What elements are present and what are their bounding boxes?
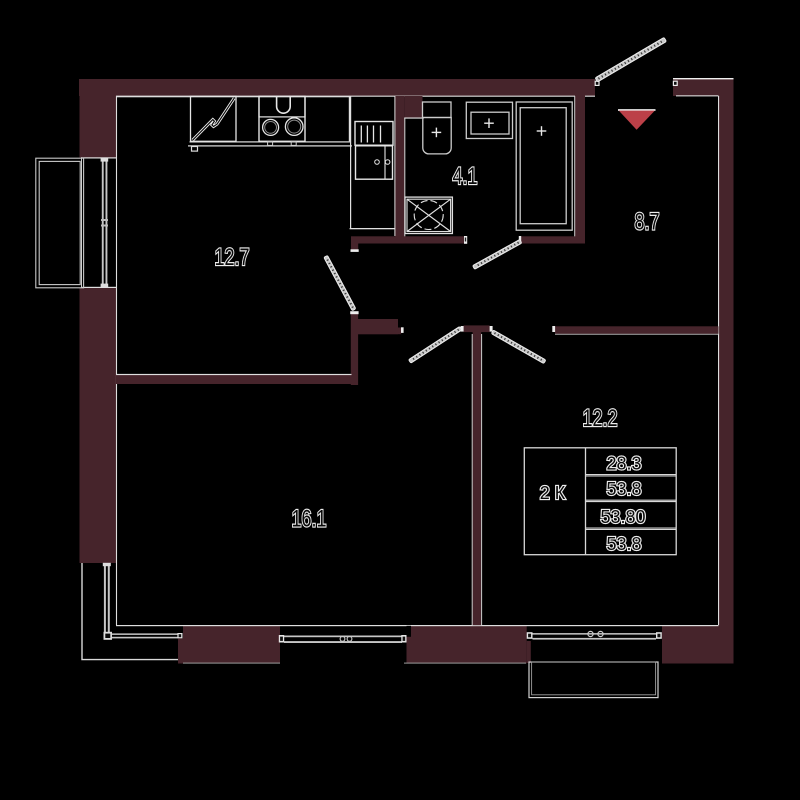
svg-text:12.7: 12.7 [214,245,249,271]
svg-text:4.1: 4.1 [452,164,477,190]
svg-text:12.2: 12.2 [582,406,617,432]
svg-text:53.8: 53.8 [606,479,641,499]
svg-text:8.7: 8.7 [634,209,659,235]
svg-text:16.1: 16.1 [291,506,326,532]
svg-text:28.3: 28.3 [606,454,641,474]
svg-text:2 К: 2 К [540,483,566,503]
svg-text:53.8: 53.8 [606,534,641,554]
svg-text:53.80: 53.80 [600,507,645,527]
